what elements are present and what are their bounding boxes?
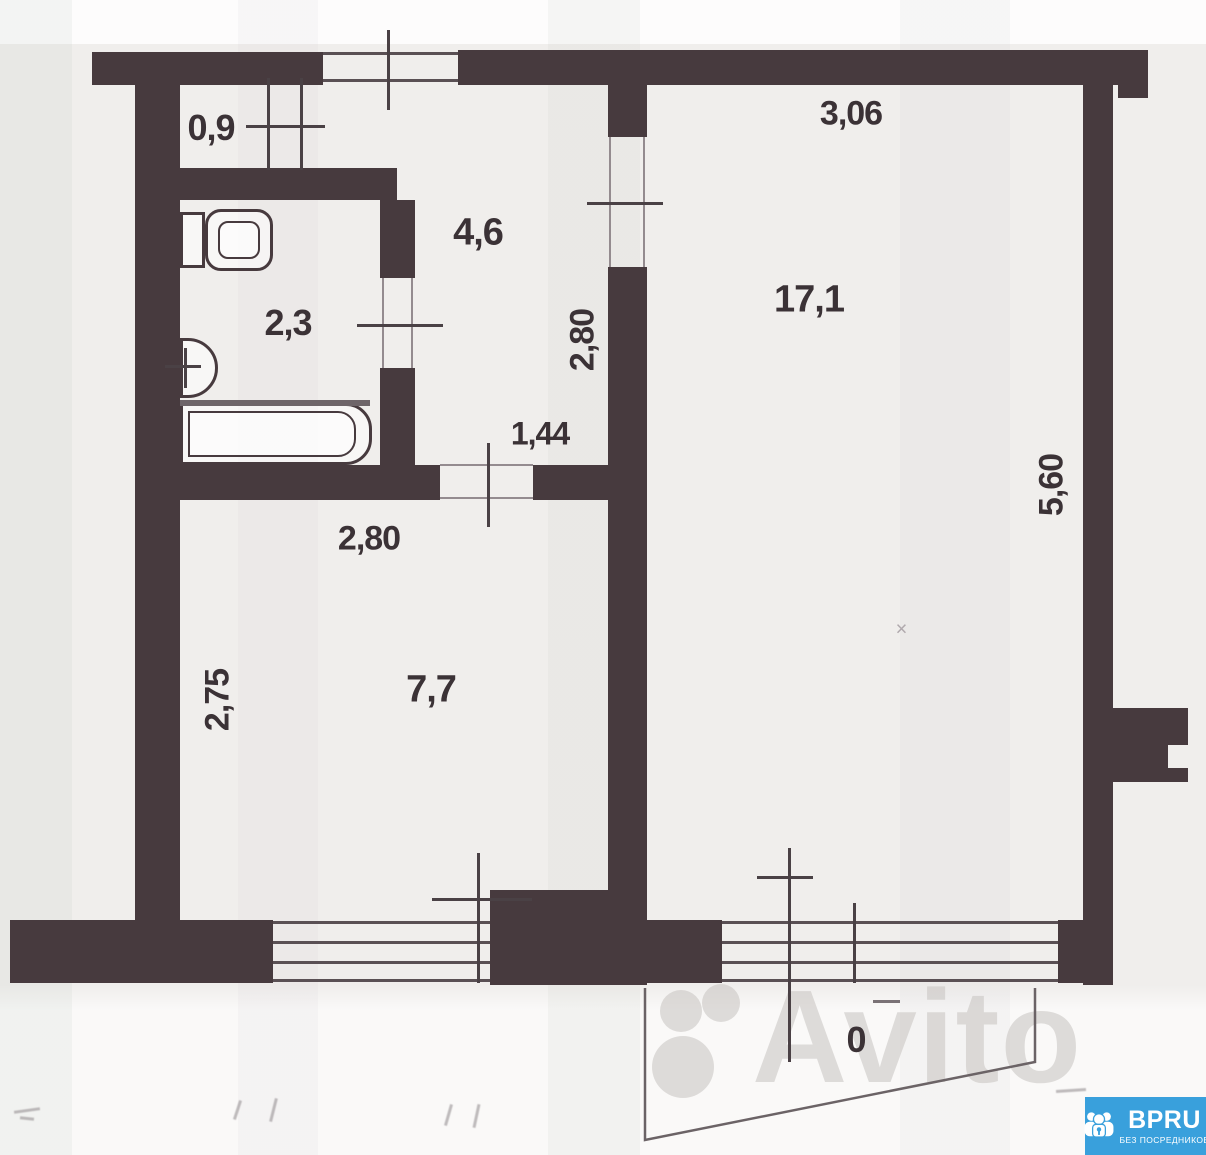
wall-left (135, 85, 180, 923)
door-bath-edge (382, 278, 384, 368)
room-entry-lobby (180, 85, 608, 168)
wall-bottom-center (490, 890, 647, 985)
balcony-area (645, 988, 1035, 1140)
bathtub-inner (188, 411, 356, 457)
floor-plan-scan: 0,9 4,6 2,3 2,80 1,44 2,80 2,75 7,7 3,06… (0, 0, 1206, 1155)
bpru-people-lock-icon (1082, 1109, 1116, 1143)
dim-obscured: 0 (846, 1019, 865, 1061)
pencil-mark (232, 1098, 292, 1124)
dim-entry-width: 0,9 (187, 107, 234, 149)
label-room-area: 17,1 (774, 279, 844, 322)
wall-bath-right-lower (380, 368, 415, 465)
wall-kitchen-top-left (135, 465, 440, 500)
wall-top-right (458, 50, 1148, 85)
dim-kitchen-depth: 2,75 (199, 669, 238, 731)
window-kitchen-frame (273, 941, 490, 944)
dim-tick-balcony (873, 1000, 900, 1003)
dim-tick-entry (300, 78, 303, 170)
wall-bottom-left (10, 920, 273, 983)
dim-tick-living-window (853, 903, 856, 983)
wall-right-tab-notch (1168, 745, 1188, 768)
toilet-bowl-inner (218, 221, 260, 259)
dim-tick-kitchen-door (487, 443, 490, 527)
door-bath-edge (411, 278, 413, 368)
window-kitchen-frame (273, 979, 490, 982)
dim-tick-kitchen-window (477, 853, 480, 983)
toilet-tank-mount (172, 220, 182, 230)
toilet-tank-mount (172, 248, 182, 258)
toilet-tank (180, 212, 205, 268)
window-living-frame (722, 961, 1058, 964)
room-kitchen (180, 500, 608, 920)
dim-room-depth: 5,60 (1033, 454, 1072, 516)
bathtub-rim (180, 400, 370, 406)
window-top-frame (323, 79, 458, 82)
pencil-mark (1056, 1086, 1090, 1096)
window-living-frame (722, 941, 1058, 944)
dim-room-width: 3,06 (820, 95, 882, 134)
bpru-badge: BPRU БЕЗ ПОСРЕДНИКОВ (1085, 1097, 1206, 1155)
bpru-brand-text: BPRU (1128, 1108, 1201, 1133)
bpru-tagline-text: БЕЗ ПОСРЕДНИКОВ (1120, 1136, 1206, 1145)
small-x-mark: × (896, 619, 907, 642)
pencil-mark (445, 1102, 495, 1130)
wall-lobby-inner (135, 168, 397, 200)
wall-bath-right-upper (380, 200, 415, 278)
dim-hall-width: 2,80 (564, 309, 603, 371)
dim-tick-living-door (587, 202, 663, 205)
wall-kitchen-top-right (533, 465, 608, 500)
wall-top-left (92, 52, 323, 85)
label-hall-area: 4,6 (453, 212, 503, 255)
window-kitchen-frame (273, 921, 490, 924)
label-kitchen-area: 7,7 (406, 669, 456, 712)
dim-tick-top-window (387, 30, 390, 110)
sink-faucet (165, 365, 201, 368)
dim-tick-living-window-long (788, 848, 791, 1062)
wall-bottom-center-right (647, 920, 722, 983)
dim-hall-passage: 1,44 (511, 416, 569, 453)
window-kitchen-frame (273, 961, 490, 964)
sink-faucet (184, 348, 187, 388)
dim-tick-entry (267, 78, 270, 170)
wall-top-right-tab (1118, 50, 1148, 98)
pencil-mark (14, 1105, 48, 1123)
window-living-frame (722, 921, 1058, 924)
wall-middle-main (608, 267, 647, 920)
dim-tick-kitchen-window (432, 898, 532, 901)
label-bath-area: 2,3 (264, 302, 311, 344)
wall-middle-upper (608, 85, 647, 137)
window-living-frame (722, 979, 1058, 982)
dim-line-entry (246, 125, 325, 128)
wall-right (1083, 70, 1113, 985)
room-living (647, 85, 1083, 920)
dim-kitchen-width: 2,80 (338, 520, 400, 559)
dim-tick-living-window (757, 876, 813, 879)
window-top-frame (323, 52, 458, 55)
dim-tick-bath-door (357, 324, 443, 327)
